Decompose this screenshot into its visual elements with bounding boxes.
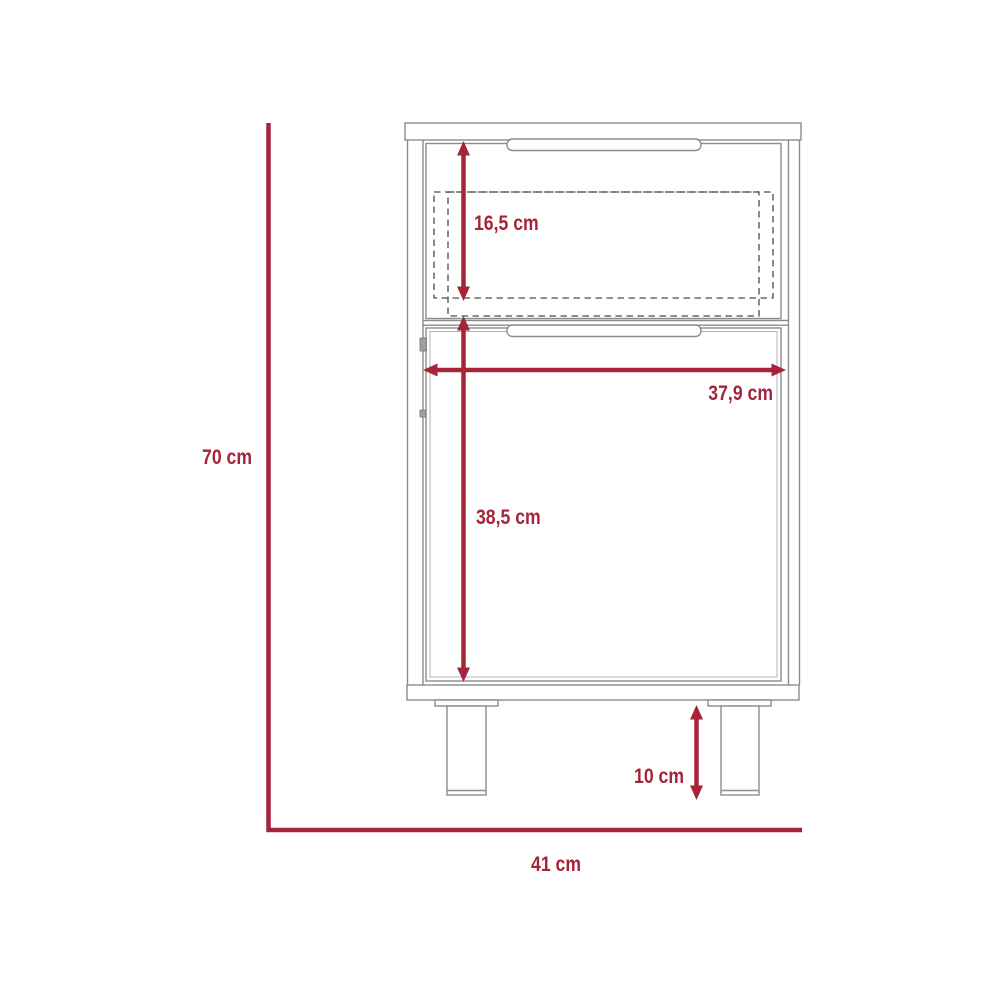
right-leg-mount (708, 700, 771, 706)
door-hinge-bottom (420, 410, 426, 417)
interior-width-label: 37,9 cm (708, 381, 773, 405)
dimension-drawing: 70 cm 41 cm 16,5 cm 38,5 cm 37,9 cm 10 c… (0, 0, 1000, 1000)
cabinet-bottom-panel (407, 685, 799, 700)
drawer-handle (507, 139, 701, 151)
right-leg (721, 706, 759, 795)
door-height-label: 38,5 cm (476, 505, 541, 529)
overall-width-label: 41 cm (531, 852, 581, 876)
interior-width-label-group: 37,9 cm (708, 381, 773, 405)
overall-height-label-group: 70 cm (202, 445, 252, 469)
door-hinge-top (420, 338, 427, 351)
drawer-dashed-outline-back (434, 192, 773, 298)
drawer-height-label-group: 16,5 cm (474, 211, 539, 235)
cabinet-top-panel (405, 123, 801, 140)
cabinet-diagram: 70 cm 41 cm 16,5 cm 38,5 cm 37,9 cm 10 c… (0, 0, 1000, 1000)
overall-width-label-group: 41 cm (531, 852, 581, 876)
drawer-height-label: 16,5 cm (474, 211, 539, 235)
left-leg-mount (435, 700, 498, 706)
door-handle (507, 325, 701, 337)
leg-height-label: 10 cm (634, 764, 684, 788)
left-leg (447, 706, 486, 795)
drawer-height-arrow (457, 141, 470, 301)
leg-height-arrow (690, 705, 703, 800)
leg-height-label-group: 10 cm (634, 764, 684, 788)
door-height-label-group: 38,5 cm (476, 505, 541, 529)
overall-height-label: 70 cm (202, 445, 252, 469)
interior-width-arrow (423, 364, 786, 377)
